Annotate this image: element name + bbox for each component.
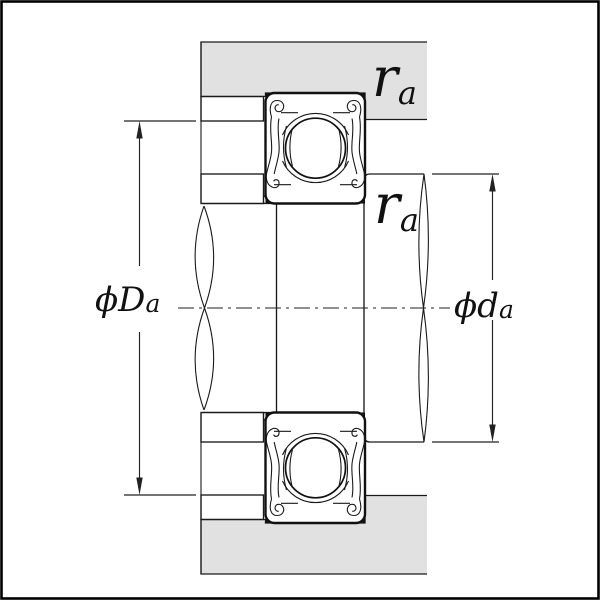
bearing-mounting-diagram: ϕDa ϕda ra ra [0, 0, 600, 600]
bearing-top [266, 93, 366, 204]
bearing-bottom [266, 413, 366, 524]
